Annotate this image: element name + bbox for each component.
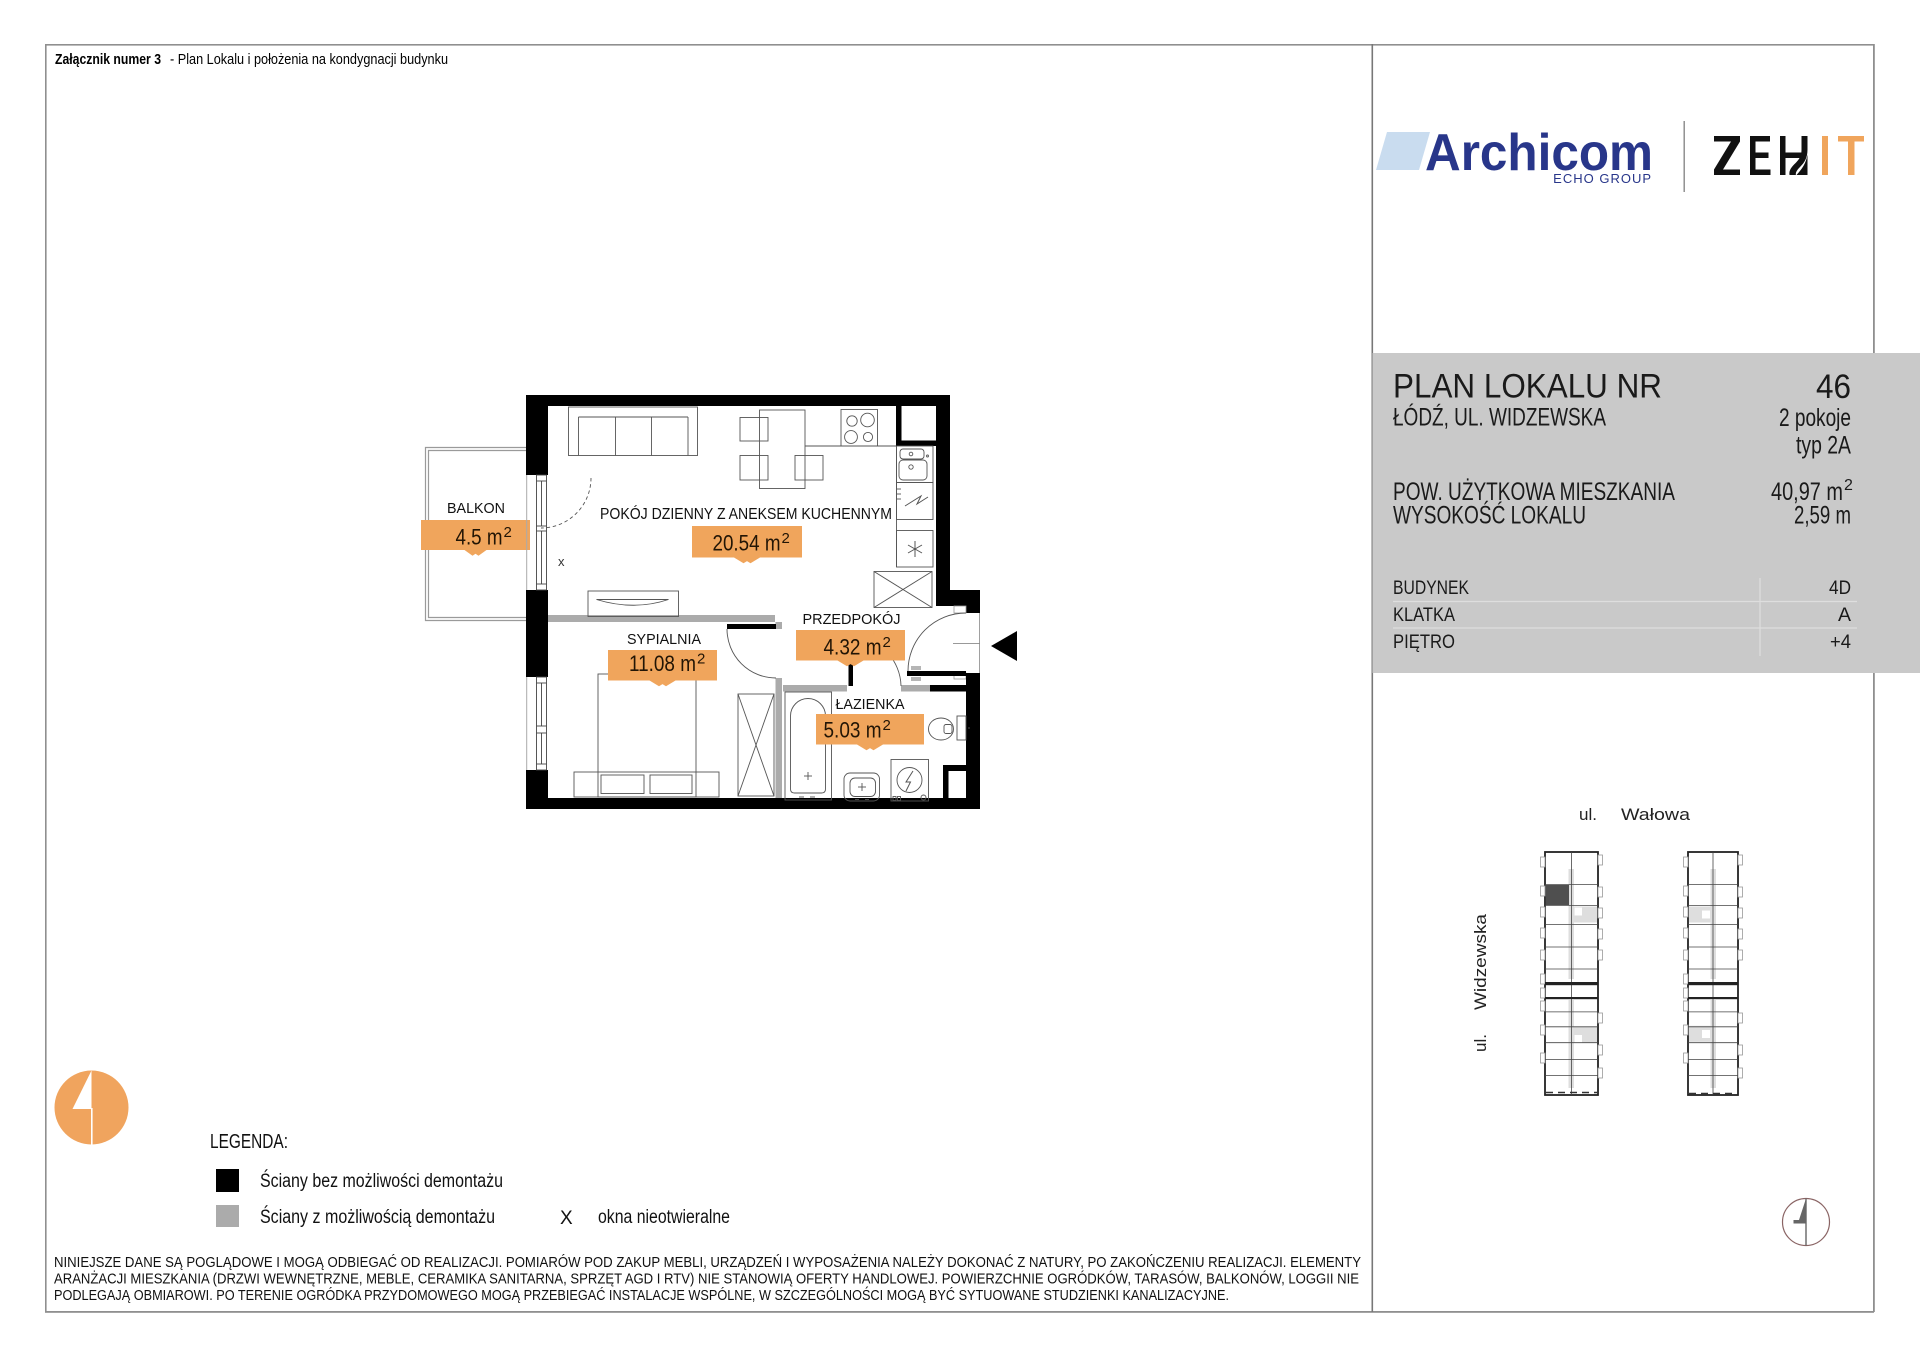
svg-text:ECHO GROUP: ECHO GROUP bbox=[1553, 171, 1652, 186]
svg-text:46: 46 bbox=[1816, 368, 1851, 406]
svg-text:PODLEGAJĄ OBMIAROWI. PO TERENI: PODLEGAJĄ OBMIAROWI. PO TERENIE OGRÓDKA … bbox=[54, 1286, 1229, 1304]
svg-text:Widzewska: Widzewska bbox=[1471, 913, 1490, 1010]
svg-text:A: A bbox=[1838, 604, 1851, 626]
svg-text:PLAN LOKALU NR: PLAN LOKALU NR bbox=[1393, 368, 1662, 406]
svg-text:Wałowa: Wałowa bbox=[1621, 805, 1691, 824]
svg-text:PIĘTRO: PIĘTRO bbox=[1393, 631, 1455, 653]
svg-text:2: 2 bbox=[883, 717, 891, 734]
svg-text:+4: +4 bbox=[1830, 631, 1851, 653]
svg-text:ŁAZIENKA: ŁAZIENKA bbox=[836, 696, 905, 713]
svg-text:KLATKA: KLATKA bbox=[1393, 604, 1455, 626]
svg-text:20.54 m: 20.54 m bbox=[713, 531, 781, 556]
svg-text:11.08 m: 11.08 m bbox=[629, 651, 696, 676]
svg-text:Załącznik numer 3: Załącznik numer 3 bbox=[55, 51, 161, 68]
svg-text:x: x bbox=[558, 554, 565, 569]
svg-text:ul.: ul. bbox=[1471, 1034, 1490, 1052]
svg-text:ŁÓDŹ, UL. WIDZEWSKA: ŁÓDŹ, UL. WIDZEWSKA bbox=[1393, 403, 1606, 432]
svg-text:2,59 m: 2,59 m bbox=[1794, 502, 1851, 530]
svg-text:LEGENDA:: LEGENDA: bbox=[210, 1131, 288, 1153]
svg-text:ARANŻACJI MIESZKANIA (DRZWI WE: ARANŻACJI MIESZKANIA (DRZWI WEWNĘTRZNE, … bbox=[54, 1270, 1359, 1288]
svg-text:okna nieotwieralne: okna nieotwieralne bbox=[598, 1207, 730, 1228]
svg-text:2: 2 bbox=[883, 634, 891, 651]
svg-text:4.32 m: 4.32 m bbox=[824, 635, 882, 660]
svg-text:2 pokoje: 2 pokoje bbox=[1779, 404, 1851, 432]
svg-text:4.5 m: 4.5 m bbox=[456, 525, 503, 550]
svg-text:- Plan Lokalu i położenia na k: - Plan Lokalu i położenia na kondygnacji… bbox=[170, 52, 448, 68]
svg-text:typ 2A: typ 2A bbox=[1796, 432, 1851, 460]
svg-text:4D: 4D bbox=[1829, 577, 1851, 599]
svg-text:POKÓJ DZIENNY Z ANEKSEM KUCHEN: POKÓJ DZIENNY Z ANEKSEM KUCHENNYM bbox=[600, 504, 892, 523]
svg-text:2: 2 bbox=[782, 530, 790, 547]
svg-text:2: 2 bbox=[697, 651, 705, 668]
svg-text:Ściany bez możliwości demontaż: Ściany bez możliwości demontażu bbox=[260, 1170, 503, 1192]
svg-text:BALKON: BALKON bbox=[447, 500, 505, 517]
svg-text:2: 2 bbox=[504, 524, 512, 541]
svg-text:NINIEJSZE DANE SĄ POGLĄDOWE I: NINIEJSZE DANE SĄ POGLĄDOWE I MOGĄ ODBIE… bbox=[54, 1253, 1361, 1271]
svg-text:PRZEDPOKÓJ: PRZEDPOKÓJ bbox=[803, 611, 901, 628]
svg-text:Ściany z możliwością demontażu: Ściany z możliwością demontażu bbox=[260, 1206, 495, 1228]
svg-text:5.03 m: 5.03 m bbox=[824, 718, 882, 743]
svg-text:ul.: ul. bbox=[1579, 805, 1597, 824]
svg-text:BUDYNEK: BUDYNEK bbox=[1393, 577, 1469, 599]
svg-text:X: X bbox=[560, 1208, 573, 1229]
svg-text:2: 2 bbox=[1844, 477, 1853, 494]
svg-text:SYPIALNIA: SYPIALNIA bbox=[627, 631, 701, 648]
svg-text:WYSOKOŚĆ LOKALU: WYSOKOŚĆ LOKALU bbox=[1393, 500, 1586, 530]
